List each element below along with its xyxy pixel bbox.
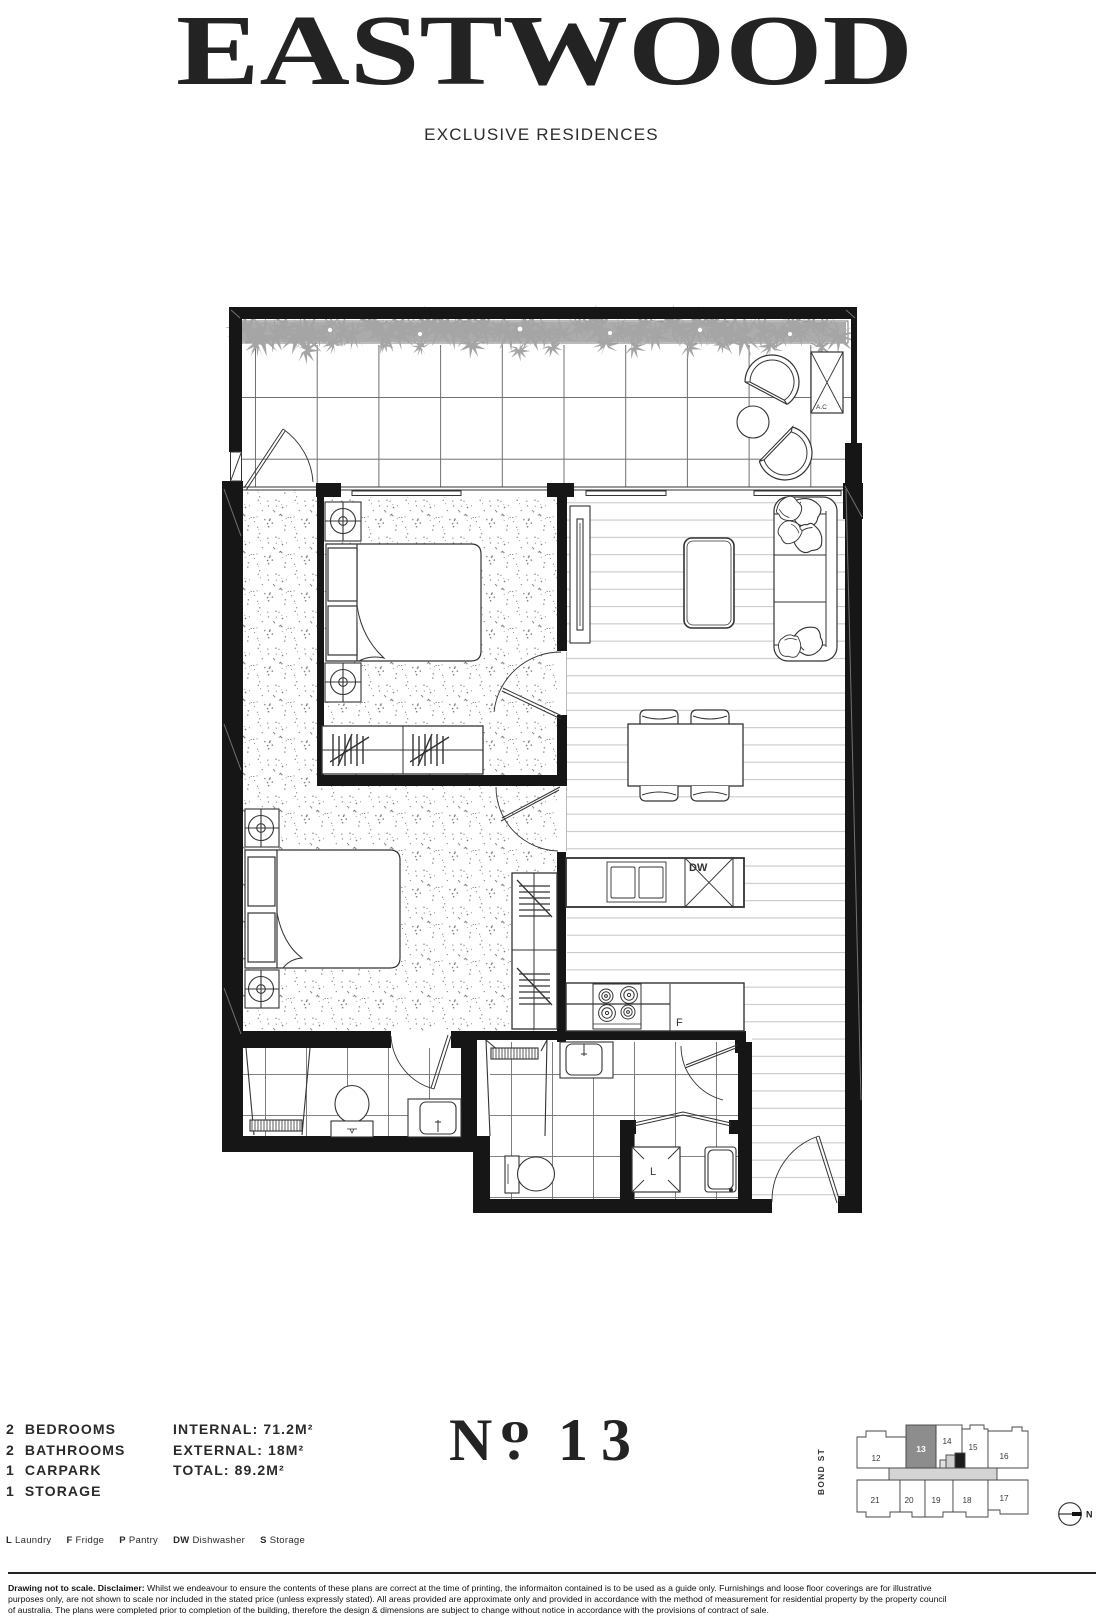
svg-text:DW: DW [689,862,708,874]
svg-text:20: 20 [904,1496,914,1505]
svg-text:14: 14 [942,1437,952,1446]
svg-text:16: 16 [999,1452,1009,1461]
svg-text:18: 18 [962,1496,972,1505]
svg-text:15: 15 [968,1443,978,1452]
svg-text:19: 19 [931,1496,941,1505]
svg-text:13: 13 [916,1444,926,1454]
svg-text:12: 12 [871,1454,881,1463]
svg-text:A.C: A.C [816,404,827,411]
svg-text:F: F [676,1017,683,1029]
svg-text:21: 21 [870,1496,880,1505]
svg-text:N: N [449,1407,492,1473]
svg-text:L: L [650,1166,656,1178]
svg-text:BOND ST: BOND ST [816,1448,826,1495]
svg-text:17: 17 [999,1494,1009,1503]
svg-text:13: 13 [558,1407,644,1473]
svg-text:o: o [500,1406,530,1452]
svg-text:N: N [1086,1510,1093,1520]
